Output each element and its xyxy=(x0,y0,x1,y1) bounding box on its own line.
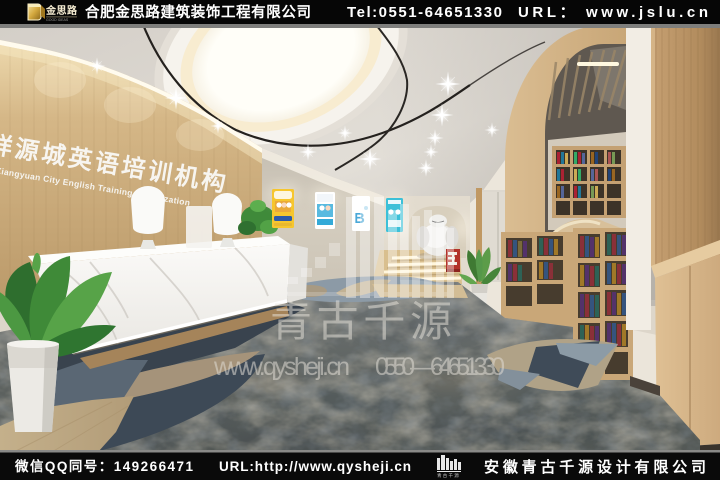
svg-text:Tel:0551-64651330: Tel:0551-64651330 xyxy=(347,4,502,21)
svg-text:0550—64651330: 0550—64651330 xyxy=(375,353,505,381)
svg-text:青 古 千 源: 青 古 千 源 xyxy=(437,472,459,479)
svg-text:金思路: 金思路 xyxy=(45,4,78,17)
svg-text:www.qysheji.cn: www.qysheji.cn xyxy=(213,353,350,381)
svg-text:URL:http://www.qysheji.cn: URL:http://www.qysheji.cn xyxy=(219,459,411,474)
svg-text:合肥金思路建筑装饰工程有限公司: 合肥金思路建筑装饰工程有限公司 xyxy=(84,3,311,21)
svg-text:GOOD IDEAS: GOOD IDEAS xyxy=(46,18,69,22)
svg-text:微信QQ同号：149266471: 微信QQ同号：149266471 xyxy=(14,458,193,474)
